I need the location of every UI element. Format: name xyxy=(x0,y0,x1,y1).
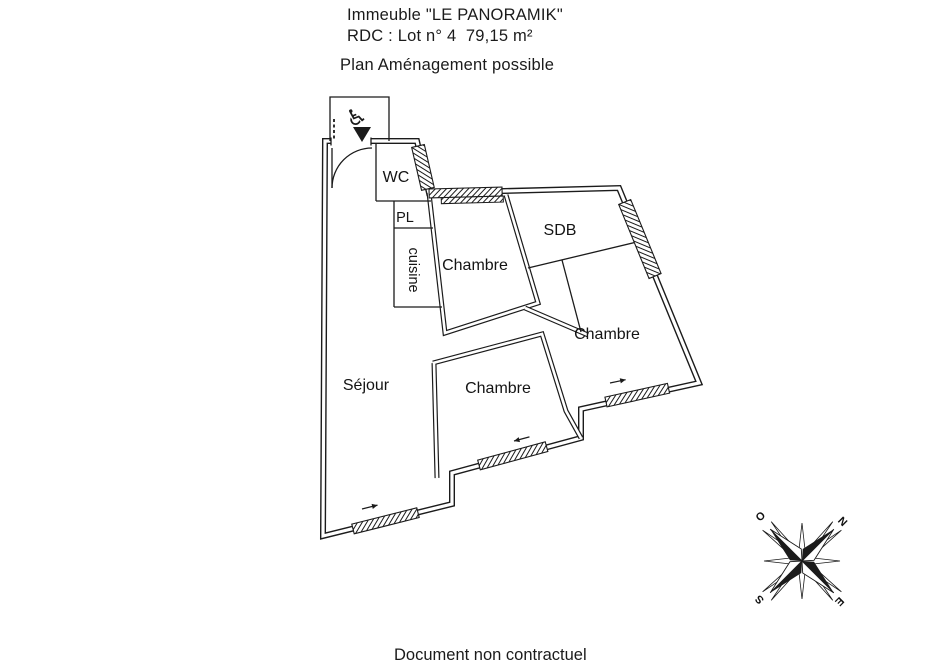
compass-label-west: O xyxy=(754,509,769,524)
exterior-wall xyxy=(323,141,699,536)
room-label-sejour: Séjour xyxy=(343,377,390,394)
compass-label-east: E xyxy=(832,594,846,608)
floor-plan-drawing: ♿ xyxy=(0,0,950,667)
room-label-cuisine: cuisine xyxy=(405,247,421,292)
compass-label-south: S xyxy=(753,592,767,606)
room-label-chambre-top: Chambre xyxy=(442,257,508,274)
room-label-sdb: SDB xyxy=(544,222,577,239)
disclaimer-text: Document non contractuel xyxy=(394,646,587,665)
room-label-pl: PL xyxy=(396,210,414,226)
floor-plan-page: Immeuble "LE PANORAMIK" RDC : Lot n° 4 7… xyxy=(0,0,950,667)
compass-rose: O N S E xyxy=(753,509,849,608)
room-label-wc: WC xyxy=(383,169,410,186)
compass-label-north: N xyxy=(835,515,849,529)
entry-opening xyxy=(331,137,372,146)
room-label-chambre-east: Chambre xyxy=(574,326,640,343)
room-label-chambre-middle: Chambre xyxy=(465,380,531,397)
